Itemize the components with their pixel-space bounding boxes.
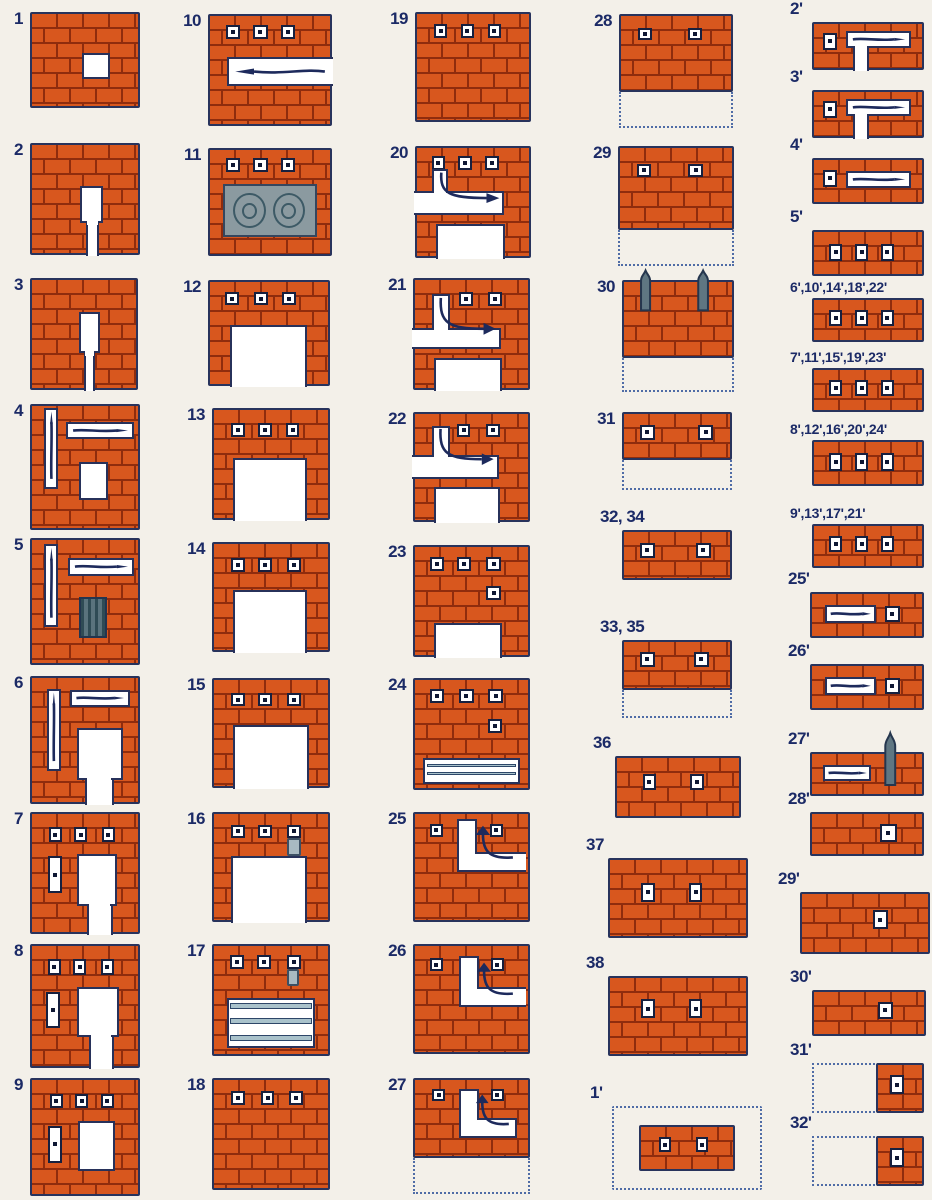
course-label: 9',13',17',21' [790,505,865,521]
flue-opening [281,158,295,172]
flue-opening [643,774,656,790]
flow-arrow-icon [827,679,874,693]
flue-dot [235,960,239,964]
flue-dot [647,780,651,784]
figure-4: 4' [812,158,924,204]
flue-dot [834,460,838,464]
figure-31: 31 [622,412,732,460]
flue-dot [834,386,838,390]
flue-opening [253,158,267,172]
flue-dot [292,829,296,833]
flue-opening [49,827,62,842]
flue-dot [78,965,82,969]
course-label: 3 [14,275,23,295]
figure-1: 1 [30,12,140,108]
flow-arrow-icon [229,59,333,84]
inner-brick-panel [876,1136,924,1186]
course-label: 37 [586,835,604,855]
flow-arrow-icon [432,296,500,346]
figure-32: 32' [812,1136,924,1186]
flue-opening [289,1091,303,1105]
flue-dot [895,1083,899,1087]
course-label: 27' [788,729,809,749]
flow-arrow-icon [68,424,132,437]
flue-opening [102,827,115,842]
flue-dot [645,430,649,434]
flue-dot [291,428,295,432]
flue-opening [258,693,272,707]
figure-29: 29 [618,146,734,230]
figure-30: 30' [812,990,926,1036]
course-label: 19 [390,9,408,29]
course-diagram [30,12,140,108]
flue-dot [492,29,496,33]
flue-opening [855,536,868,552]
flue-dot [263,428,267,432]
flue-opening [225,292,239,305]
flue-dot [462,562,466,566]
figure-30: 30 [622,280,734,358]
flue-dot [695,780,699,784]
course-diagram [622,530,732,580]
course-diagram [812,368,924,412]
flue-dot [860,250,864,254]
flow-arrow [461,1091,514,1134]
void-opening [77,728,124,780]
shelf-bar [427,764,516,767]
flue-dot [463,161,467,165]
flow-arrow-icon [72,692,127,704]
flue-opening [430,824,444,838]
void-opening [434,623,502,658]
seam-patch [91,1032,111,1039]
course-diagram [413,812,530,922]
figure-23: 23 [413,545,530,657]
course-diagram [212,812,330,922]
flue-dot [230,297,234,301]
flue-dot [663,1143,667,1147]
figure-11: 11 [208,148,332,256]
course-diagram [30,812,140,934]
void-opening [79,462,109,500]
flue-dot [694,168,698,172]
flue-opening [696,543,711,558]
dotted-outline-extension [622,690,732,718]
flue-dot [878,918,882,922]
flue-opening [698,425,713,440]
flue-opening [74,827,87,842]
course-label: 3' [790,67,803,87]
flue-opening [458,156,471,170]
figure-27: 27 [413,1078,530,1158]
figure-24: 24 [413,678,530,790]
flue-opening [688,28,702,41]
flow-arrow-icon [461,1091,514,1134]
flue-dot [860,386,864,390]
course-diagram [30,538,140,665]
flue-opening [885,678,900,694]
seam-patch [855,114,867,118]
flow-arrow [461,959,519,1005]
flue-opening [48,856,62,893]
course-label: 23 [388,542,406,562]
flue-dot [464,694,468,698]
flue-dot [286,163,290,167]
course-diagram [622,640,732,690]
flow-arrow-icon [46,410,57,487]
flow-arrow-icon [825,767,869,779]
oven-shelves [423,758,520,784]
course-diagram [622,412,732,460]
course-label: 10 [183,11,201,31]
course-diagram [30,676,140,804]
flue-opening [488,689,503,703]
flue-opening [258,825,272,839]
void-opening [436,224,505,259]
course-diagram [413,412,530,522]
figure-38: 38 [608,976,748,1056]
course-label: 7 [14,809,23,829]
flue-opening [48,959,61,975]
flue-opening [430,689,445,703]
flue-dot [646,890,650,894]
flue-opening [829,453,842,471]
figure-5: 5 [30,538,140,665]
flue-opening [641,999,655,1018]
course-diagram [618,146,734,230]
shelf-bar [230,1018,312,1024]
flue-opening [432,1089,446,1101]
figure-4: 4 [30,404,140,530]
course-diagram [615,756,741,818]
flow-arrow-icon [46,546,57,626]
flue-dot [436,161,440,165]
flue-dot [287,297,291,301]
dotted-outline-extension [618,230,734,266]
shelf-bar [427,772,516,775]
inner-brick-panel [876,1063,924,1113]
dotted-outline [812,1136,879,1186]
flue-dot [693,32,697,36]
flue-opening [282,292,296,305]
flue-opening [281,25,295,39]
dotted-outline-extension [413,1158,530,1194]
flue-dot [883,1008,887,1012]
flue-opening [73,959,86,975]
flue-dot [286,30,290,34]
figure-14: 14 [212,542,330,652]
void-opening [84,351,95,391]
course-diagram [30,1078,140,1196]
dotted-outline [812,1063,879,1113]
flue-dot [53,833,57,837]
flue-dot [646,1007,650,1011]
course-label: 29' [778,869,799,889]
course-label: 9 [14,1075,23,1095]
flue-dot [106,833,110,837]
course-diagram [812,22,924,70]
course-label: 8',12',16',20',24' [790,421,887,437]
figure-31: 31' [812,1063,924,1113]
shelf-bar [230,1003,312,1009]
dotted-outline-extension [622,460,732,490]
damper-valve-icon [638,269,653,312]
void-opening [86,221,99,256]
course-label: 21 [388,275,406,295]
course-label: 4' [790,135,803,155]
flue-dot [645,657,649,661]
figure-26: 26 [413,944,530,1054]
figure-2: 2 [30,143,140,255]
flue-dot [292,563,296,567]
course-label: 33, 35 [600,617,644,637]
brickwork-texture [802,894,928,952]
void-opening [231,856,307,923]
flue-opening [254,292,268,305]
flue-opening [231,1091,245,1105]
course-diagram [812,440,924,486]
flue-dot [231,163,235,167]
figure-9-13-17-21: 9',13',17',21' [812,524,924,568]
course-diagram [810,592,924,638]
flue-dot [262,960,266,964]
course-label: 14 [187,539,205,559]
course-diagram [812,90,924,138]
smoke-channel [825,677,876,695]
flow-arrow-icon [70,560,132,573]
course-diagram [622,280,734,358]
damper-valve [638,269,653,312]
course-diagram [208,280,330,386]
course-label: 17 [187,941,205,961]
course-diagram [212,944,330,1056]
void-opening [434,358,502,391]
course-diagram [30,404,140,530]
brickwork-texture [641,1127,733,1169]
course-diagram [812,230,924,276]
flue-dot [645,548,649,552]
course-diagram [30,143,140,255]
flue-dot [236,698,240,702]
flue-opening [829,536,842,552]
flue-opening [829,310,842,326]
figure-37: 37 [608,858,748,938]
course-label: 12 [183,277,201,297]
flue-opening [659,1137,671,1152]
flue-opening [488,24,501,39]
flue-opening [430,958,444,972]
figure-16: 16 [212,812,330,922]
flue-opening [485,156,498,170]
course-diagram [413,1078,530,1158]
burner-ring-icon [273,193,305,228]
course-diagram [810,664,924,710]
flue-opening [486,586,501,600]
flue-dot [492,591,496,595]
flue-dot [236,1096,240,1100]
figure-3: 3 [30,278,138,390]
flue-dot [694,890,698,894]
flue-opening [689,999,703,1018]
seam-patch [87,775,111,782]
figure-7-11-15-19-23: 7',11',15',19',23' [812,368,924,412]
flue-dot [834,316,838,320]
flue-dot [435,694,439,698]
flue-opening [823,170,837,187]
flue-opening [881,380,894,396]
flue-opening [459,689,474,703]
flue-opening [101,959,114,975]
flue-dot [258,30,262,34]
course-label: 28 [594,11,612,31]
course-diagram [415,12,531,122]
brickwork-texture [610,860,746,936]
flue-dot [294,1096,298,1100]
figure-5: 5' [812,230,924,276]
course-label: 28' [788,789,809,809]
flue-opening [880,824,897,842]
flue-dot [263,563,267,567]
flue-opening [258,558,272,572]
flue-opening [486,557,501,571]
flow-arrow [459,822,519,869]
flue-dot [828,107,832,111]
flue-opening [829,244,842,261]
flue-dot [700,1143,704,1147]
course-label: 16 [187,809,205,829]
flue-opening [226,158,240,172]
flue-opening [48,1126,62,1164]
flue-opening [829,380,842,396]
flue-opening [253,25,267,39]
figure-9: 9 [30,1078,140,1196]
void-opening [80,186,103,223]
flue-opening [890,1148,904,1167]
course-diagram [619,14,733,92]
flue-opening [890,1075,904,1094]
course-label: 1' [590,1083,603,1103]
void-opening [78,1121,115,1171]
course-label: 11 [184,145,201,165]
flue-opening [257,955,271,969]
void-opening [79,312,100,353]
flue-dot [236,428,240,432]
flue-dot [860,542,864,546]
figure-32-34: 32, 34 [622,530,732,580]
inner-brick-panel [639,1125,735,1171]
flue-dot [643,32,647,36]
flue-opening [434,24,447,39]
smoke-channel [70,690,129,706]
flue-opening [286,423,300,437]
flue-opening [881,244,894,261]
void-opening [853,48,869,71]
course-label: 20 [390,143,408,163]
damper-valve-icon [695,269,711,312]
flue-dot [51,1008,55,1012]
figure-29: 29' [800,892,930,954]
flue-dot [435,562,439,566]
brickwork-texture [812,814,922,854]
flue-opening [46,992,60,1028]
smoke-channel [44,408,59,489]
flue-opening [640,425,655,440]
course-label: 36 [593,733,611,753]
flue-opening [287,955,301,969]
void-opening [233,458,307,521]
flue-opening [226,25,240,39]
flue-dot [885,250,889,254]
course-diagram [413,678,530,790]
figure-21: 21 [413,278,530,390]
flue-opening [885,606,900,622]
course-label: 31 [597,409,615,429]
flue-opening [881,310,894,326]
figure-3: 3' [812,90,924,138]
figure-15: 15 [212,678,330,788]
flue-dot [434,963,438,967]
flue-opening [823,33,837,50]
course-diagram [812,298,924,342]
flue-dot [258,163,262,167]
flue-opening [690,774,703,790]
flue-opening [258,423,272,437]
flue-dot [231,30,235,34]
flue-opening [696,1137,708,1152]
flue-dot [642,168,646,172]
flue-opening [640,652,655,667]
course-diagram [812,158,924,204]
flue-opening [461,24,474,39]
flow-arrow-icon [432,171,504,212]
cleanout-cylinder [287,838,301,856]
flue-opening [432,156,445,170]
course-diagram [212,678,330,788]
figure-25: 25 [413,812,530,922]
smoke-channel [47,689,61,771]
figure-2: 2' [812,22,924,70]
flow-arrow [432,296,500,346]
flue-dot [465,29,469,33]
flue-opening [855,453,868,471]
course-label: 25' [788,569,809,589]
void-opening [82,53,111,80]
flue-dot [53,1142,57,1146]
course-label: 1 [14,9,23,29]
flue-dot [236,829,240,833]
flue-opening [641,883,655,902]
course-label: 26' [788,641,809,661]
flue-opening [261,1091,275,1105]
flue-opening [287,558,301,572]
flue-dot [105,965,109,969]
void-opening [89,1035,113,1069]
flow-arrow-icon [49,691,59,769]
flue-dot [699,657,703,661]
flue-opening [873,910,888,929]
smoke-channel [66,422,134,439]
burner-ring-icon [233,193,265,228]
flue-opening [689,883,703,902]
course-label: 4 [14,401,23,421]
figure-22: 22 [413,412,530,522]
course-diagram [413,278,530,390]
flue-opening [688,164,703,177]
void-opening [77,987,119,1037]
flow-arrow-icon [848,101,909,114]
flue-opening [878,1002,893,1019]
course-diagram [812,990,926,1036]
